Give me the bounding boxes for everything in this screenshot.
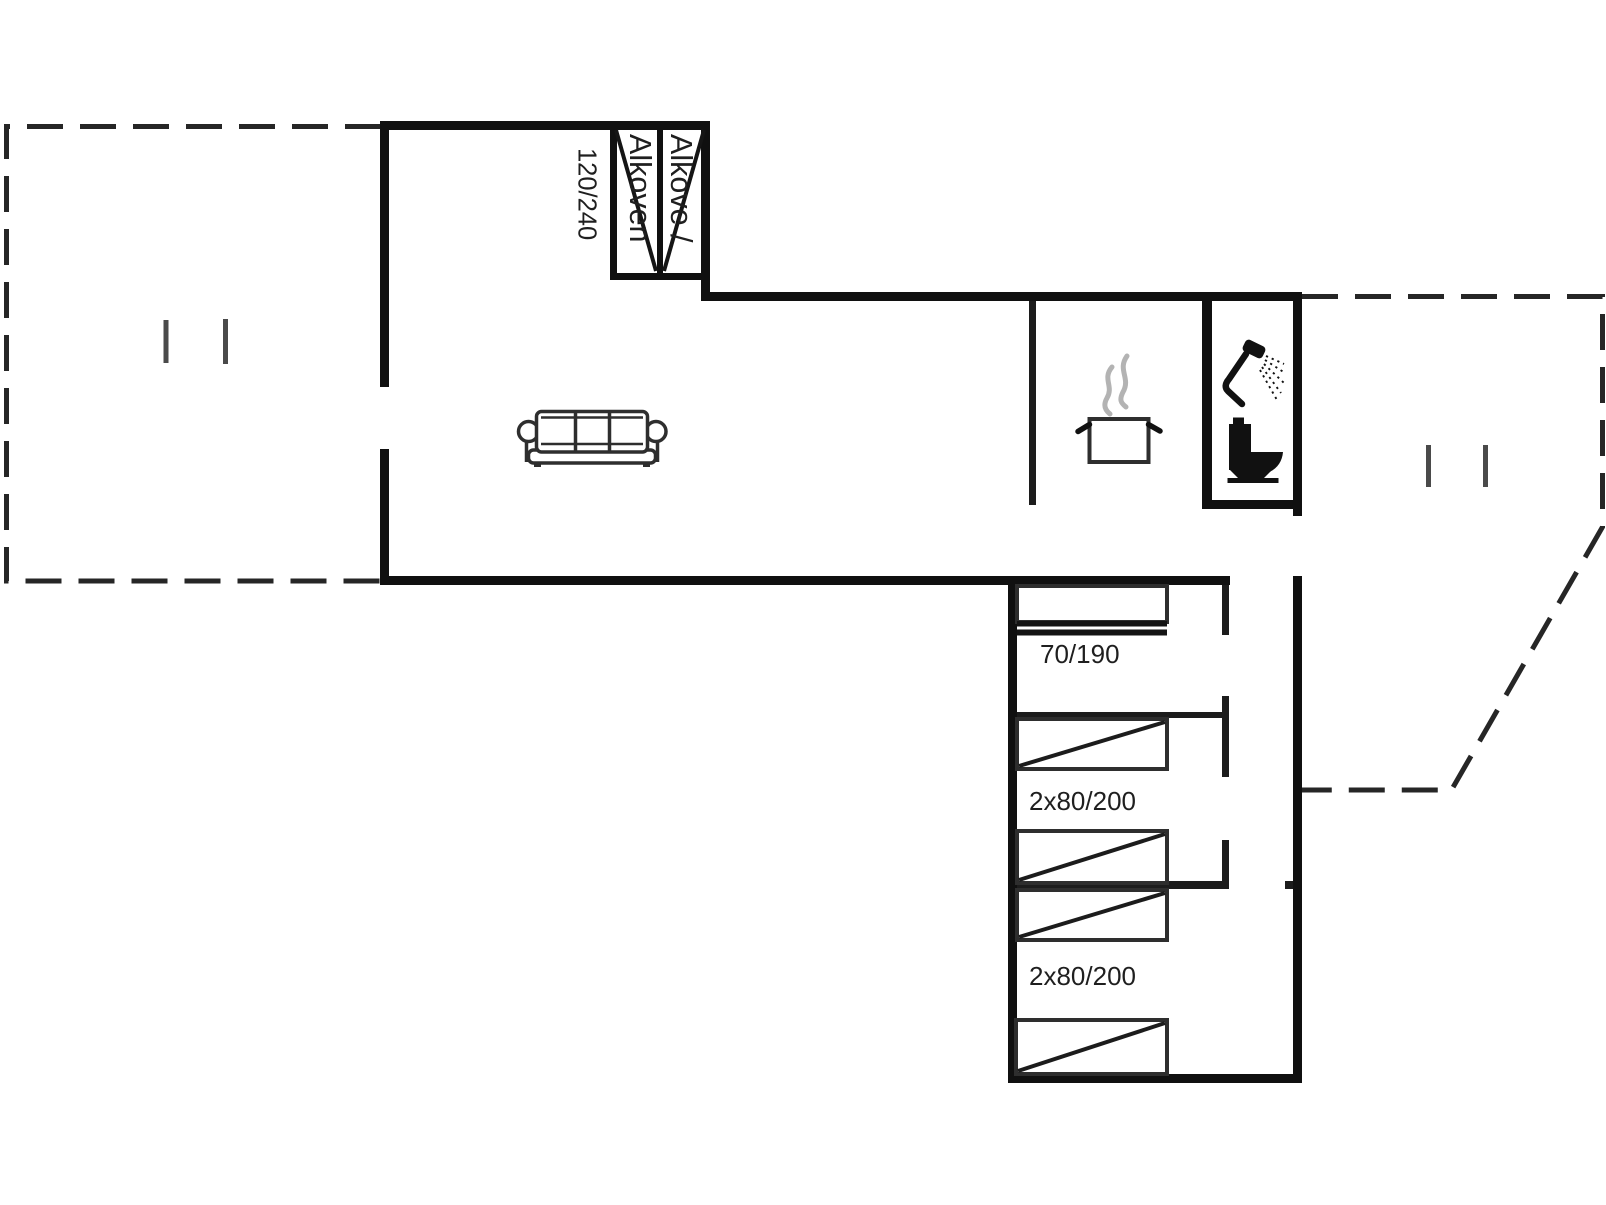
- svg-text:2x80/200: 2x80/200: [1029, 961, 1136, 991]
- svg-text:Alkove /: Alkove /: [664, 134, 698, 243]
- svg-text:70/190: 70/190: [1040, 639, 1120, 669]
- svg-text:120/240: 120/240: [573, 148, 601, 240]
- svg-text:2x80/200: 2x80/200: [1029, 786, 1136, 816]
- svg-text:Alkoven: Alkoven: [623, 134, 657, 243]
